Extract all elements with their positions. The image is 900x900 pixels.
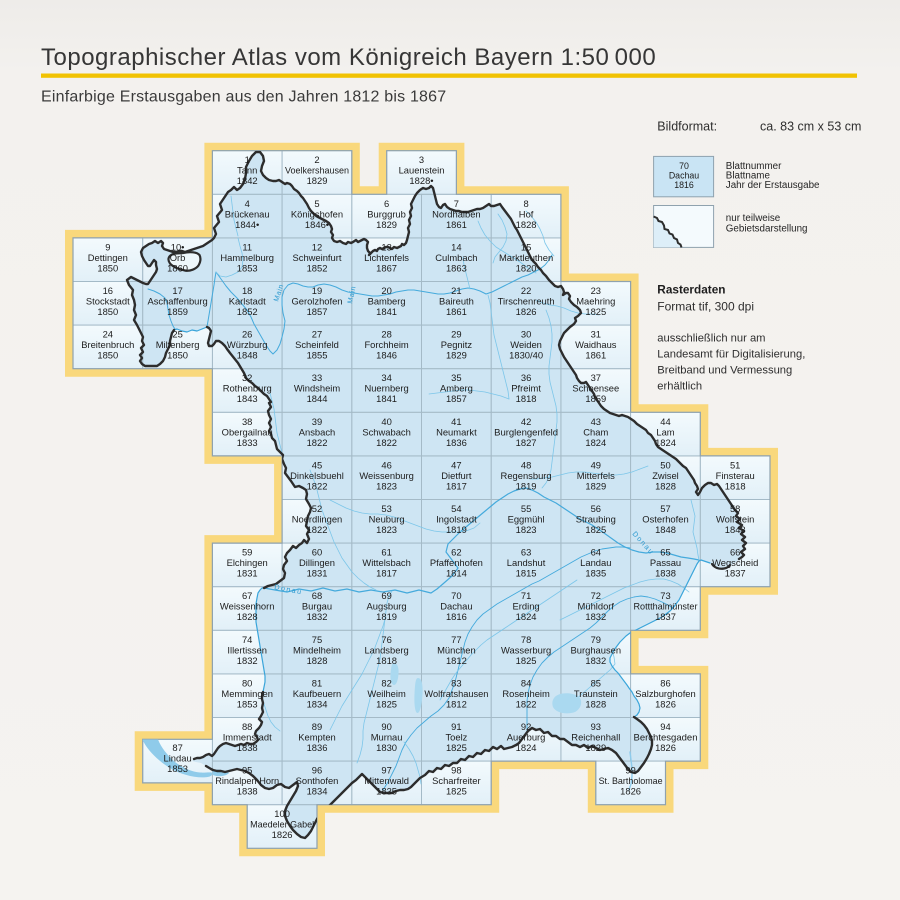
svg-text:95: 95 <box>242 765 252 776</box>
svg-text:1832: 1832 <box>585 611 606 622</box>
svg-text:Toelz: Toelz <box>445 732 467 743</box>
svg-text:6: 6 <box>384 198 389 209</box>
svg-text:Rosenheim: Rosenheim <box>502 688 550 699</box>
svg-text:Schoensee: Schoensee <box>572 383 619 394</box>
svg-text:73: 73 <box>660 590 670 601</box>
svg-text:13: 13 <box>381 241 391 252</box>
svg-text:90: 90 <box>381 721 391 732</box>
svg-text:Landshut: Landshut <box>507 557 546 568</box>
svg-text:Breitband und Vermessung: Breitband und Vermessung <box>657 364 792 376</box>
svg-text:76: 76 <box>381 634 391 645</box>
svg-text:Ansbach: Ansbach <box>299 426 335 437</box>
svg-text:43: 43 <box>591 416 601 427</box>
svg-text:Burgau: Burgau <box>302 601 332 612</box>
svg-text:1828: 1828 <box>516 219 537 230</box>
svg-text:1859: 1859 <box>167 306 188 317</box>
svg-text:Lichtenfels: Lichtenfels <box>364 252 409 263</box>
svg-text:1828: 1828 <box>307 655 328 666</box>
svg-text:1825: 1825 <box>516 655 537 666</box>
svg-text:Hof: Hof <box>519 208 534 219</box>
svg-text:1843: 1843 <box>237 393 258 404</box>
svg-text:36: 36 <box>521 372 531 383</box>
svg-text:Nuernberg: Nuernberg <box>364 383 408 394</box>
svg-text:25: 25 <box>172 329 182 340</box>
svg-text:1814: 1814 <box>446 568 467 579</box>
svg-text:1850: 1850 <box>97 306 118 317</box>
svg-text:47: 47 <box>451 459 461 470</box>
svg-text:1857: 1857 <box>446 393 467 404</box>
svg-text:24: 24 <box>103 329 113 340</box>
svg-text:Landsberg: Landsberg <box>364 644 408 655</box>
svg-text:23: 23 <box>591 285 601 296</box>
svg-text:Wittelsbach: Wittelsbach <box>362 557 410 568</box>
svg-text:1819: 1819 <box>376 611 397 622</box>
svg-text:1826: 1826 <box>655 698 676 709</box>
svg-text:erhältlich: erhältlich <box>657 380 702 392</box>
svg-text:1861: 1861 <box>585 350 606 361</box>
svg-text:37: 37 <box>591 372 601 383</box>
svg-text:1818: 1818 <box>376 655 397 666</box>
svg-text:51: 51 <box>730 459 740 470</box>
svg-text:Nordhalben: Nordhalben <box>432 208 480 219</box>
svg-text:1859: 1859 <box>585 393 606 404</box>
svg-text:Traunstein: Traunstein <box>574 688 618 699</box>
svg-text:31: 31 <box>591 329 601 340</box>
svg-text:33: 33 <box>312 372 322 383</box>
svg-text:Wolfratshausen: Wolfratshausen <box>424 688 488 699</box>
svg-text:1823: 1823 <box>516 524 537 535</box>
svg-text:1828•: 1828• <box>409 175 433 186</box>
svg-text:Würzburg: Würzburg <box>227 339 268 350</box>
svg-text:1823: 1823 <box>376 524 397 535</box>
svg-text:1822: 1822 <box>307 437 328 448</box>
svg-text:1842: 1842 <box>237 175 258 186</box>
svg-text:Dettingen: Dettingen <box>88 252 128 263</box>
svg-text:1818: 1818 <box>725 480 746 491</box>
svg-text:8: 8 <box>523 198 528 209</box>
svg-text:28: 28 <box>381 329 391 340</box>
svg-text:38: 38 <box>242 416 252 427</box>
svg-text:1825: 1825 <box>446 742 467 753</box>
svg-text:Bildformat:: Bildformat: <box>657 119 717 133</box>
svg-text:Breitenbruch: Breitenbruch <box>81 339 134 350</box>
svg-text:1832: 1832 <box>237 655 258 666</box>
svg-text:50: 50 <box>660 459 670 470</box>
svg-text:53: 53 <box>381 503 391 514</box>
svg-text:1835: 1835 <box>376 786 397 797</box>
svg-text:96: 96 <box>312 765 322 776</box>
svg-text:1850: 1850 <box>167 350 188 361</box>
svg-text:Brückenau: Brückenau <box>225 208 270 219</box>
svg-text:Rasterdaten: Rasterdaten <box>657 283 725 297</box>
svg-text:1834: 1834 <box>307 786 328 797</box>
svg-text:Tirschenreuth: Tirschenreuth <box>498 296 555 307</box>
svg-text:1828: 1828 <box>655 480 676 491</box>
svg-text:4: 4 <box>245 198 250 209</box>
svg-text:ca. 83 cm x 53 cm: ca. 83 cm x 53 cm <box>760 119 861 133</box>
svg-text:41: 41 <box>451 416 461 427</box>
svg-text:1861: 1861 <box>446 306 467 317</box>
svg-text:58: 58 <box>730 503 740 514</box>
svg-text:Gebietsdarstellung: Gebietsdarstellung <box>726 224 808 235</box>
svg-text:Amberg: Amberg <box>440 383 473 394</box>
svg-text:Mitterfels: Mitterfels <box>577 470 615 481</box>
svg-text:1826: 1826 <box>516 306 537 317</box>
svg-text:1817: 1817 <box>446 480 467 491</box>
svg-text:1828: 1828 <box>585 698 606 709</box>
svg-text:22: 22 <box>521 285 531 296</box>
svg-text:1844: 1844 <box>307 393 328 404</box>
svg-text:11: 11 <box>242 241 252 252</box>
svg-text:80: 80 <box>242 677 252 688</box>
svg-text:Wolfstein: Wolfstein <box>716 514 754 525</box>
svg-text:1824: 1824 <box>585 437 606 448</box>
svg-text:1828: 1828 <box>237 611 258 622</box>
svg-text:67: 67 <box>242 590 252 601</box>
svg-text:ausschließlich nur am: ausschließlich nur am <box>657 332 765 344</box>
svg-text:Berchtesgaden: Berchtesgaden <box>634 732 698 743</box>
svg-text:Waidhaus: Waidhaus <box>575 339 617 350</box>
svg-text:1829: 1829 <box>585 480 606 491</box>
svg-text:5: 5 <box>314 198 319 209</box>
svg-text:1824: 1824 <box>655 437 676 448</box>
svg-text:Dachau: Dachau <box>669 171 699 181</box>
svg-text:82: 82 <box>381 677 391 688</box>
svg-text:1852: 1852 <box>237 306 258 317</box>
svg-text:92: 92 <box>521 721 531 732</box>
svg-text:46: 46 <box>381 459 391 470</box>
svg-text:1850: 1850 <box>97 262 118 273</box>
svg-text:Elchingen: Elchingen <box>227 557 268 568</box>
svg-text:84: 84 <box>521 677 531 688</box>
svg-text:Burggrub: Burggrub <box>367 208 406 219</box>
svg-text:Noerdlingen: Noerdlingen <box>292 514 343 525</box>
svg-text:34: 34 <box>381 372 391 383</box>
svg-text:Lindau: Lindau <box>164 753 192 764</box>
svg-text:St. Bartholomae: St. Bartholomae <box>599 775 663 786</box>
svg-text:1831: 1831 <box>307 568 328 579</box>
svg-text:Orb: Orb <box>170 252 186 263</box>
svg-text:42: 42 <box>521 416 531 427</box>
svg-text:56: 56 <box>591 503 601 514</box>
svg-text:68: 68 <box>312 590 322 601</box>
svg-text:74: 74 <box>242 634 252 645</box>
svg-text:1823: 1823 <box>376 480 397 491</box>
svg-text:1848: 1848 <box>655 524 676 535</box>
svg-text:Karlstadt: Karlstadt <box>229 296 266 307</box>
svg-text:Wegscheid: Wegscheid <box>712 557 758 568</box>
svg-text:Miltenberg: Miltenberg <box>156 339 200 350</box>
svg-text:Pfaffenhofen: Pfaffenhofen <box>430 557 483 568</box>
svg-text:Immenstadt: Immenstadt <box>223 732 272 743</box>
svg-text:München: München <box>437 644 476 655</box>
svg-text:Memmingen: Memmingen <box>221 688 273 699</box>
svg-text:15: 15 <box>521 241 531 252</box>
svg-text:Lam: Lam <box>656 426 674 437</box>
svg-text:1822: 1822 <box>376 437 397 448</box>
svg-text:7: 7 <box>454 198 459 209</box>
svg-text:35: 35 <box>451 372 461 383</box>
svg-text:1841: 1841 <box>376 306 397 317</box>
svg-text:14: 14 <box>451 241 461 252</box>
svg-text:52: 52 <box>312 503 322 514</box>
svg-text:19: 19 <box>312 285 322 296</box>
svg-text:93: 93 <box>591 721 601 732</box>
svg-text:Weiden: Weiden <box>510 339 542 350</box>
svg-text:21: 21 <box>451 285 461 296</box>
svg-text:Schweinfurt: Schweinfurt <box>293 252 342 263</box>
svg-text:29: 29 <box>451 329 461 340</box>
svg-text:Osterhofen: Osterhofen <box>642 514 688 525</box>
svg-text:1829: 1829 <box>307 175 328 186</box>
svg-text:Rottthalmünster: Rottthalmünster <box>634 601 698 612</box>
svg-text:97: 97 <box>381 765 391 776</box>
svg-text:1844•: 1844• <box>235 219 259 230</box>
svg-text:Dillingen: Dillingen <box>299 557 335 568</box>
svg-text:78: 78 <box>521 634 531 645</box>
svg-text:99: 99 <box>625 765 635 776</box>
svg-text:60: 60 <box>312 547 322 558</box>
svg-text:48: 48 <box>521 459 531 470</box>
svg-text:Schwabach: Schwabach <box>362 426 410 437</box>
svg-text:62: 62 <box>451 547 461 558</box>
svg-text:1834: 1834 <box>307 698 328 709</box>
svg-text:Ingolstadt: Ingolstadt <box>436 514 477 525</box>
svg-text:44: 44 <box>660 416 670 427</box>
svg-text:1832: 1832 <box>585 655 606 666</box>
svg-text:100: 100 <box>274 808 290 819</box>
svg-text:1825: 1825 <box>585 306 606 317</box>
svg-text:32: 32 <box>242 372 252 383</box>
svg-text:1833: 1833 <box>237 437 258 448</box>
svg-text:Cham: Cham <box>583 426 608 437</box>
svg-text:16: 16 <box>103 285 113 296</box>
svg-text:81: 81 <box>312 677 322 688</box>
svg-text:49: 49 <box>591 459 601 470</box>
svg-text:1848: 1848 <box>237 350 258 361</box>
svg-text:1837: 1837 <box>725 568 746 579</box>
svg-text:1830/40: 1830/40 <box>509 350 543 361</box>
svg-text:54: 54 <box>451 503 461 514</box>
svg-text:1: 1 <box>245 154 250 165</box>
svg-text:1818: 1818 <box>516 393 537 404</box>
svg-text:1838: 1838 <box>237 742 258 753</box>
svg-text:1825: 1825 <box>585 524 606 535</box>
svg-text:72: 72 <box>591 590 601 601</box>
svg-text:nur teilweise: nur teilweise <box>726 213 781 224</box>
svg-text:Kempten: Kempten <box>298 732 336 743</box>
svg-text:1853: 1853 <box>237 698 258 709</box>
svg-text:1860: 1860 <box>167 262 188 273</box>
svg-text:Dinkelsbuehl: Dinkelsbuehl <box>290 470 344 481</box>
svg-text:Weissenburg: Weissenburg <box>359 470 414 481</box>
svg-text:1832: 1832 <box>307 611 328 622</box>
svg-text:1837: 1837 <box>655 611 676 622</box>
svg-text:Reichenhall: Reichenhall <box>571 732 620 743</box>
svg-text:Voelkershausen: Voelkershausen <box>285 165 349 176</box>
svg-text:77: 77 <box>451 634 461 645</box>
svg-text:Aschaffenburg: Aschaffenburg <box>147 296 207 307</box>
svg-text:Format tif, 300 dpi: Format tif, 300 dpi <box>657 300 754 314</box>
svg-text:1841: 1841 <box>376 393 397 404</box>
svg-text:Wasserburg: Wasserburg <box>501 644 551 655</box>
svg-text:Erding: Erding <box>513 601 540 612</box>
svg-text:75: 75 <box>312 634 322 645</box>
svg-text:79: 79 <box>591 634 601 645</box>
svg-text:1853: 1853 <box>237 262 258 273</box>
svg-text:1820: 1820 <box>516 262 537 273</box>
svg-text:1829: 1829 <box>446 350 467 361</box>
svg-text:1853: 1853 <box>167 763 188 774</box>
svg-text:Illertissen: Illertissen <box>227 644 267 655</box>
svg-text:65: 65 <box>660 547 670 558</box>
svg-text:1826: 1826 <box>620 786 641 797</box>
svg-text:Culmbach: Culmbach <box>435 252 477 263</box>
svg-text:1846: 1846 <box>376 350 397 361</box>
svg-text:Maehring: Maehring <box>576 296 615 307</box>
svg-text:Landau: Landau <box>580 557 611 568</box>
svg-text:Stockstadt: Stockstadt <box>86 296 130 307</box>
svg-text:30: 30 <box>521 329 531 340</box>
svg-text:1835: 1835 <box>585 568 606 579</box>
svg-text:Forchheim: Forchheim <box>364 339 408 350</box>
svg-text:1826: 1826 <box>655 742 676 753</box>
svg-text:1824: 1824 <box>516 742 537 753</box>
svg-text:1812: 1812 <box>446 655 467 666</box>
svg-text:Maedeler Gabel: Maedeler Gabel <box>250 819 314 830</box>
svg-text:Salzburghofen: Salzburghofen <box>635 688 695 699</box>
svg-text:70: 70 <box>679 161 689 171</box>
svg-text:Gerolzhofen: Gerolzhofen <box>291 296 342 307</box>
svg-text:91: 91 <box>451 721 461 732</box>
svg-text:Windsheim: Windsheim <box>294 383 341 394</box>
svg-text:1825: 1825 <box>446 786 467 797</box>
svg-text:Pfreimt: Pfreimt <box>511 383 541 394</box>
svg-text:Straubing: Straubing <box>576 514 616 525</box>
svg-text:Regensburg: Regensburg <box>501 470 552 481</box>
svg-text:Zwisel: Zwisel <box>652 470 679 481</box>
svg-text:Dietfurt: Dietfurt <box>441 470 472 481</box>
svg-text:39: 39 <box>312 416 322 427</box>
svg-text:Kaufbeuern: Kaufbeuern <box>293 688 341 699</box>
svg-text:Jahr der Erstausgabe: Jahr der Erstausgabe <box>726 180 820 191</box>
svg-text:66: 66 <box>730 547 740 558</box>
svg-text:Dachau: Dachau <box>440 601 472 612</box>
svg-text:1861: 1861 <box>446 219 467 230</box>
svg-text:26: 26 <box>242 329 252 340</box>
svg-text:1822: 1822 <box>307 524 328 535</box>
svg-text:1812: 1812 <box>446 698 467 709</box>
svg-text:Landesamt für Digitalisierung,: Landesamt für Digitalisierung, <box>657 348 805 360</box>
svg-text:64: 64 <box>591 547 601 558</box>
svg-text:Obergailnau: Obergailnau <box>222 426 273 437</box>
svg-text:1816: 1816 <box>446 611 467 622</box>
svg-text:Murnau: Murnau <box>371 732 403 743</box>
svg-text:1829: 1829 <box>585 742 606 753</box>
svg-text:94: 94 <box>660 721 670 732</box>
svg-text:1815: 1815 <box>516 568 537 579</box>
svg-text:1836: 1836 <box>307 742 328 753</box>
svg-text:Rindalpen Horn: Rindalpen Horn <box>215 775 279 786</box>
svg-text:Baireuth: Baireuth <box>439 296 474 307</box>
svg-text:1831: 1831 <box>237 568 258 579</box>
svg-text:69: 69 <box>381 590 391 601</box>
svg-text:71: 71 <box>521 590 531 601</box>
svg-text:27: 27 <box>312 329 322 340</box>
svg-text:83: 83 <box>451 677 461 688</box>
svg-text:59: 59 <box>242 547 252 558</box>
svg-text:1816: 1816 <box>674 180 694 190</box>
svg-text:Passau: Passau <box>650 557 681 568</box>
svg-text:40: 40 <box>381 416 391 427</box>
svg-text:1836: 1836 <box>446 437 467 448</box>
svg-text:1819: 1819 <box>516 480 537 491</box>
svg-text:Pegnitz: Pegnitz <box>441 339 473 350</box>
svg-text:Augsburg: Augsburg <box>367 601 407 612</box>
svg-text:Scharfreiter: Scharfreiter <box>432 775 480 786</box>
svg-text:Hammelburg: Hammelburg <box>220 252 274 263</box>
svg-text:86: 86 <box>660 677 670 688</box>
svg-text:98: 98 <box>451 765 461 776</box>
svg-text:2: 2 <box>314 154 319 165</box>
svg-text:1846•: 1846• <box>305 219 329 230</box>
svg-text:1838: 1838 <box>237 786 258 797</box>
svg-text:Neuburg: Neuburg <box>369 514 405 525</box>
svg-text:1863: 1863 <box>446 262 467 273</box>
svg-text:Auerburg: Auerburg <box>507 732 546 743</box>
svg-text:1843: 1843 <box>725 524 746 535</box>
svg-text:Burghausen: Burghausen <box>571 644 622 655</box>
svg-text:Neumarkt: Neumarkt <box>436 426 477 437</box>
svg-text:57: 57 <box>660 503 670 514</box>
svg-text:55: 55 <box>521 503 531 514</box>
svg-text:18: 18 <box>242 285 252 296</box>
svg-text:70: 70 <box>451 590 461 601</box>
svg-text:45: 45 <box>312 459 322 470</box>
svg-text:1830: 1830 <box>376 742 397 753</box>
svg-text:Tann: Tann <box>237 165 257 176</box>
svg-text:1825: 1825 <box>376 698 397 709</box>
svg-text:Weilheim: Weilheim <box>367 688 406 699</box>
svg-text:1817: 1817 <box>376 568 397 579</box>
svg-text:1850: 1850 <box>97 350 118 361</box>
svg-text:17: 17 <box>172 285 182 296</box>
svg-text:1826: 1826 <box>272 829 293 840</box>
svg-text:1852: 1852 <box>307 262 328 273</box>
svg-text:20: 20 <box>381 285 391 296</box>
svg-text:1829: 1829 <box>376 219 397 230</box>
svg-text:1857: 1857 <box>307 306 328 317</box>
svg-text:9: 9 <box>105 241 110 252</box>
svg-text:Marktleuthen: Marktleuthen <box>499 252 553 263</box>
svg-text:88: 88 <box>242 721 252 732</box>
svg-text:Topographischer Atlas vom Köni: Topographischer Atlas vom Königreich Bay… <box>41 44 656 71</box>
svg-text:Mindelheim: Mindelheim <box>293 644 341 655</box>
svg-text:Burglengenfeld: Burglengenfeld <box>494 426 558 437</box>
svg-text:1838: 1838 <box>655 568 676 579</box>
svg-text:1822: 1822 <box>516 698 537 709</box>
svg-text:89: 89 <box>312 721 322 732</box>
svg-text:1855: 1855 <box>307 350 328 361</box>
svg-text:Einfarbige Erstausgaben aus de: Einfarbige Erstausgaben aus den Jahren 1… <box>41 89 446 106</box>
svg-text:Lauenstein: Lauenstein <box>399 165 445 176</box>
svg-text:1822: 1822 <box>307 480 328 491</box>
svg-text:Finsterau: Finsterau <box>716 470 755 481</box>
svg-text:87: 87 <box>172 742 182 753</box>
svg-text:1867: 1867 <box>376 262 397 273</box>
svg-text:Rothenburg: Rothenburg <box>223 383 272 394</box>
svg-text:3: 3 <box>419 154 424 165</box>
